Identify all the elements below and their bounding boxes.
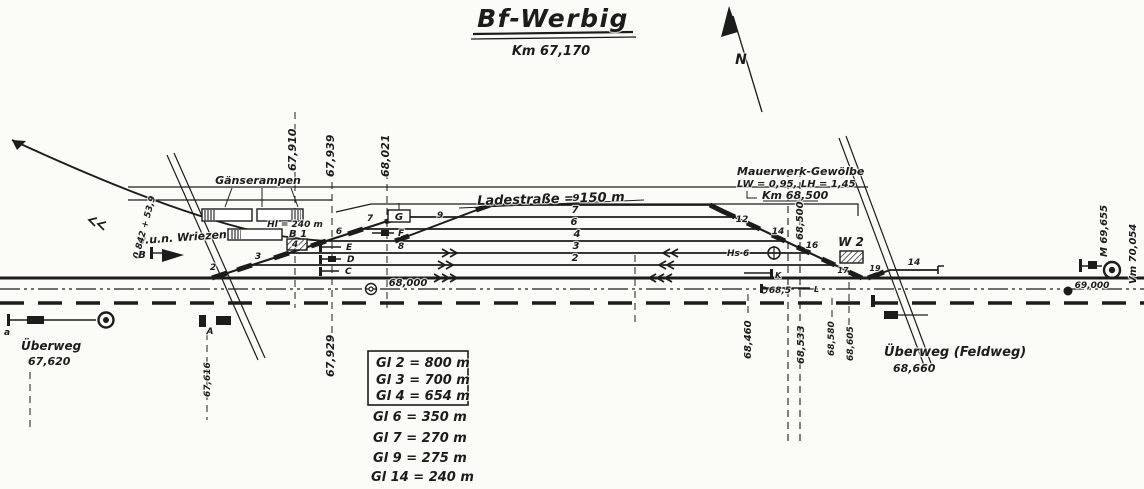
label-gaenserampen: Gänserampen	[215, 174, 301, 187]
track-plan-page: Bf-WerbigKm 67,170NGänserampenHl = 240 m…	[0, 0, 1144, 489]
label-uw-east: Überweg (Feldweg)	[884, 344, 1026, 360]
label-sw-2: 2	[210, 263, 216, 273]
label-sw-8: 8	[398, 242, 404, 252]
north-arrow-head	[721, 6, 738, 37]
label-w2: W 2	[838, 235, 864, 249]
label-uw-west-km: 67,620	[28, 355, 71, 368]
label-sw-17: 17	[837, 266, 849, 275]
label-legend-7: Gl 14 = 240 m	[371, 470, 474, 485]
label-mark-69000: 69,000	[1075, 281, 1110, 291]
east-crossing-post	[871, 295, 875, 307]
label-sw-14: 14	[772, 227, 785, 237]
label-sw-9: 9	[437, 211, 443, 221]
label-sw-4: 4	[291, 240, 298, 250]
label-legend-1: Gl 2 = 800 m	[376, 356, 470, 371]
label-mark-685: 68,5	[769, 286, 791, 296]
label-legend-5: Gl 7 = 270 m	[373, 431, 467, 446]
stub-k-bar	[770, 269, 773, 278]
label-km-68021: 68,021	[379, 135, 392, 177]
km-69000-marker	[1064, 287, 1073, 296]
label-sig-a-cap: A	[206, 327, 214, 337]
label-stub-l: L	[814, 285, 819, 294]
signal-a-box	[27, 316, 44, 324]
km-68000-marker-inner	[369, 287, 373, 291]
goose-ramp-2-hatch	[291, 210, 301, 220]
culvert-pointer	[747, 191, 757, 198]
label-uw-east-km: 68,660	[893, 362, 936, 375]
label-v-68605: 68,605	[846, 326, 856, 361]
label-gl-6: 6	[571, 217, 578, 228]
signal-A-mark	[199, 315, 206, 327]
label-g-building: G	[395, 212, 403, 223]
track-plan-canvas: Bf-WerbigKm 67,170NGänserampenHl = 240 m…	[0, 0, 1144, 489]
label-v-m: M 69,655	[1099, 205, 1110, 257]
label-subtitle: Km 67,170	[512, 44, 590, 59]
signal-m-box	[1088, 261, 1097, 269]
label-sw-16: 16	[806, 241, 819, 251]
label-stub-c: C	[345, 267, 352, 277]
label-legend-4: Gl 6 = 350 m	[373, 410, 467, 425]
label-km-67929: 67,929	[324, 334, 337, 377]
label-stub-d: D	[347, 255, 355, 265]
stub-f-derail	[381, 230, 389, 236]
label-legend-3: Gl 4 = 654 m	[376, 389, 470, 404]
signal-m-center	[1109, 267, 1115, 273]
label-gl-9: 9	[573, 193, 580, 204]
label-sig-a: a	[4, 328, 10, 338]
track-14-end	[938, 266, 944, 274]
label-legend-2: Gl 3 = 700 m	[376, 373, 470, 388]
label-gl-3: 3	[573, 241, 580, 252]
label-gl-4: 4	[573, 229, 581, 240]
signal-m-mast	[1079, 259, 1082, 272]
label-gl-2: 2	[572, 253, 579, 264]
label-stub-k: K	[775, 271, 782, 280]
signal-a-mast	[7, 314, 10, 326]
signal-b-mast	[150, 247, 153, 259]
label-title: Bf-Werbig	[477, 4, 629, 33]
label-culvert-3: Km 68,500	[762, 189, 829, 202]
label-culvert-1: Mauerwerk-Gewölbe	[737, 165, 865, 178]
stub-c-bar	[319, 267, 322, 276]
label-stub-e: E	[346, 243, 353, 253]
title-underline-2	[471, 37, 636, 39]
stub-d-bar	[319, 255, 322, 264]
signal-a-center	[103, 317, 109, 323]
signal-b-flag	[162, 249, 184, 262]
label-sw-6: 6	[336, 227, 342, 237]
label-v-vm: Vm 70,054	[1128, 224, 1139, 284]
label-stub-f: F	[398, 229, 405, 239]
goose-ramp-3-hatch	[230, 230, 241, 239]
label-mark-68000: 68,000	[389, 278, 428, 289]
label-north: N	[735, 52, 747, 68]
label-sw-7: 7	[367, 214, 374, 224]
label-gl-14: 14	[908, 258, 921, 268]
label-uw-west: Überweg	[21, 338, 82, 353]
label-v-68580: 68,580	[827, 321, 837, 356]
labels-layer: Bf-WerbigKm 67,170NGänserampenHl = 240 m…	[4, 4, 1139, 485]
label-km-67910: 67,910	[286, 128, 299, 171]
label-sw-12: 12	[736, 215, 749, 225]
stub-d-derail	[328, 256, 336, 262]
label-v-68460: 68,460	[743, 320, 754, 359]
label-b1: B 1	[289, 229, 307, 240]
label-gl-7: 7	[572, 205, 579, 216]
signals	[7, 246, 1120, 328]
label-km-67939: 67,939	[324, 134, 337, 177]
label-sig-b: B	[138, 250, 146, 261]
label-sw-19: 19	[869, 264, 881, 273]
west-crossing-mark	[216, 316, 231, 325]
label-legend-6: Gl 9 = 275 m	[373, 451, 467, 466]
label-sig-hs6: Hs 6	[727, 249, 749, 259]
building-w2-signalbox	[840, 251, 863, 263]
goose-ramp-1-hatch	[204, 210, 216, 220]
label-v-67616: 67,616	[203, 362, 213, 397]
east-crossing-mark	[884, 311, 898, 319]
ramp-pointer-ticks	[225, 188, 298, 207]
label-ladestrasse: Ladestraße = 150 m	[477, 190, 625, 209]
label-v-68533: 68,533	[796, 325, 807, 364]
label-sw-3: 3	[255, 252, 261, 262]
arrows-branch-curve	[89, 218, 106, 230]
label-km-68500-v: 68,500	[795, 201, 806, 240]
